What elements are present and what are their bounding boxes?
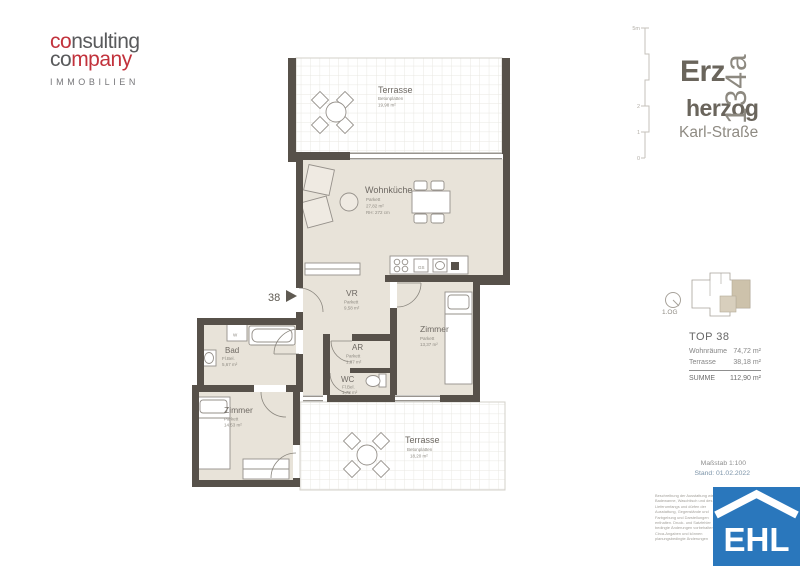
- room-name: Wohnküche: [365, 185, 412, 195]
- floorplan-page: { "colors":{"accent_red":"#c2323c","logo…: [0, 0, 800, 566]
- ruler-label-1: 1: [637, 130, 640, 136]
- area-row-terrasse: Terrasse 38,18 m²: [689, 357, 761, 368]
- area-row-wohnraeume: Wohnräume 74,72 m²: [689, 346, 761, 357]
- room-name: Zimmer: [420, 324, 449, 334]
- area-label: Terrasse: [689, 357, 716, 368]
- area-table: Wohnräume 74,72 m² Terrasse 38,18 m² SUM…: [689, 346, 761, 384]
- entrance-number: 38: [268, 292, 280, 304]
- room-area: 18,20 m²: [410, 454, 428, 459]
- scale-note: Maßstab 1:100: [626, 460, 746, 467]
- summe-label: SUMME: [689, 373, 715, 384]
- kitchen-counter: [390, 256, 468, 274]
- room-name: Zimmer: [224, 405, 253, 415]
- armchair: [304, 165, 335, 196]
- room-area: 1,87 m²: [346, 360, 362, 365]
- room-floor: Parkett: [420, 336, 435, 341]
- summe-value: 112,90 m²: [730, 373, 761, 384]
- dining-chair: [431, 214, 444, 223]
- terrace-table: [357, 445, 377, 465]
- ruler-label-2: 2: [637, 104, 640, 110]
- area-row-summe: SUMME 112,90 m²: [689, 370, 761, 384]
- ehl-logo-text: EHL: [724, 521, 790, 558]
- wardrobe-west: [243, 459, 289, 479]
- room-name: Terrasse: [405, 435, 440, 445]
- hob-burner: [402, 259, 408, 265]
- room-floor: Parkett: [224, 417, 239, 422]
- entrance-marker: 38: [268, 290, 297, 304]
- dishwasher-label: GS: [418, 265, 425, 270]
- highlighted-terrace: [720, 296, 736, 312]
- scale-ruler-labels: 5m 2 1 0: [632, 26, 640, 162]
- dining-chair: [414, 214, 427, 223]
- ruler-label-0: 0: [637, 156, 640, 162]
- terrace-south-floor: [300, 402, 505, 490]
- room-area: 1,78 m²: [342, 390, 358, 395]
- room-floor: Fl.Bel.: [342, 385, 355, 390]
- unit-title: TOP 38: [689, 331, 730, 343]
- bathtub: [249, 326, 295, 345]
- room-name: WC: [341, 375, 355, 384]
- room-floor: Parkett: [346, 354, 361, 359]
- shaft: [451, 262, 459, 270]
- room-area: 14,53 m²: [224, 423, 242, 428]
- disclaimer-text: Beschreibung der Ausstattung wie Badewan…: [655, 493, 719, 542]
- dining-chair: [414, 181, 427, 190]
- dining-table: [412, 191, 450, 213]
- room-height: RH: 272 cm: [366, 210, 390, 215]
- room-floor: Fl.Bel.: [222, 356, 235, 361]
- area-value: 74,72 m²: [733, 346, 761, 357]
- hob-burner: [394, 266, 400, 272]
- pillow: [200, 400, 227, 413]
- room-area: 9,58 m²: [344, 306, 360, 311]
- side-table: [340, 193, 358, 211]
- terrace-table: [326, 102, 346, 122]
- room-name: VR: [346, 288, 358, 298]
- compass-icon: [663, 291, 689, 311]
- ehl-logo: EHL: [713, 487, 800, 566]
- bath-sink: [202, 350, 216, 366]
- built-in-wardrobe: [305, 263, 360, 275]
- room-floor: Parkett: [366, 197, 381, 202]
- pillow: [448, 295, 469, 309]
- room-floor: Betonplatten: [407, 447, 433, 452]
- area-label: Wohnräume: [689, 346, 727, 357]
- hob-burner: [402, 266, 408, 272]
- locator-map: [688, 270, 754, 320]
- scale-ruler: [641, 28, 649, 158]
- room-name: Terrasse: [378, 85, 413, 95]
- hob-burner: [394, 259, 400, 265]
- dining-group: [412, 181, 450, 223]
- terrace-north-floor: [296, 58, 502, 154]
- disclaimer-line: planungsbedingte Änderungen: [655, 536, 719, 541]
- room-area: 19,98 m²: [378, 103, 396, 108]
- room-label-vr: VR Parkett 9,58 m²: [344, 288, 360, 311]
- floor-plan: 5m 2 1 0: [0, 0, 800, 566]
- sink-basin: [436, 262, 445, 270]
- room-area: 27,82 m²: [366, 204, 384, 209]
- room-area: 13,37 m²: [420, 342, 438, 347]
- bed-east: [445, 292, 472, 384]
- dining-chair: [431, 181, 444, 190]
- ruler-label-5m: 5m: [632, 26, 640, 32]
- room-name: AR: [352, 343, 363, 352]
- entrance-arrow-icon: [286, 290, 297, 302]
- date-note: Stand: 01.02.2022: [626, 470, 750, 477]
- room-area: 5,67 m²: [222, 362, 238, 367]
- room-floor: Parkett: [344, 300, 359, 305]
- room-floor: Betonplatten: [378, 96, 404, 101]
- area-value: 38,18 m²: [733, 357, 761, 368]
- room-name: Bad: [225, 346, 239, 355]
- floor-label: 1.OG: [662, 309, 678, 316]
